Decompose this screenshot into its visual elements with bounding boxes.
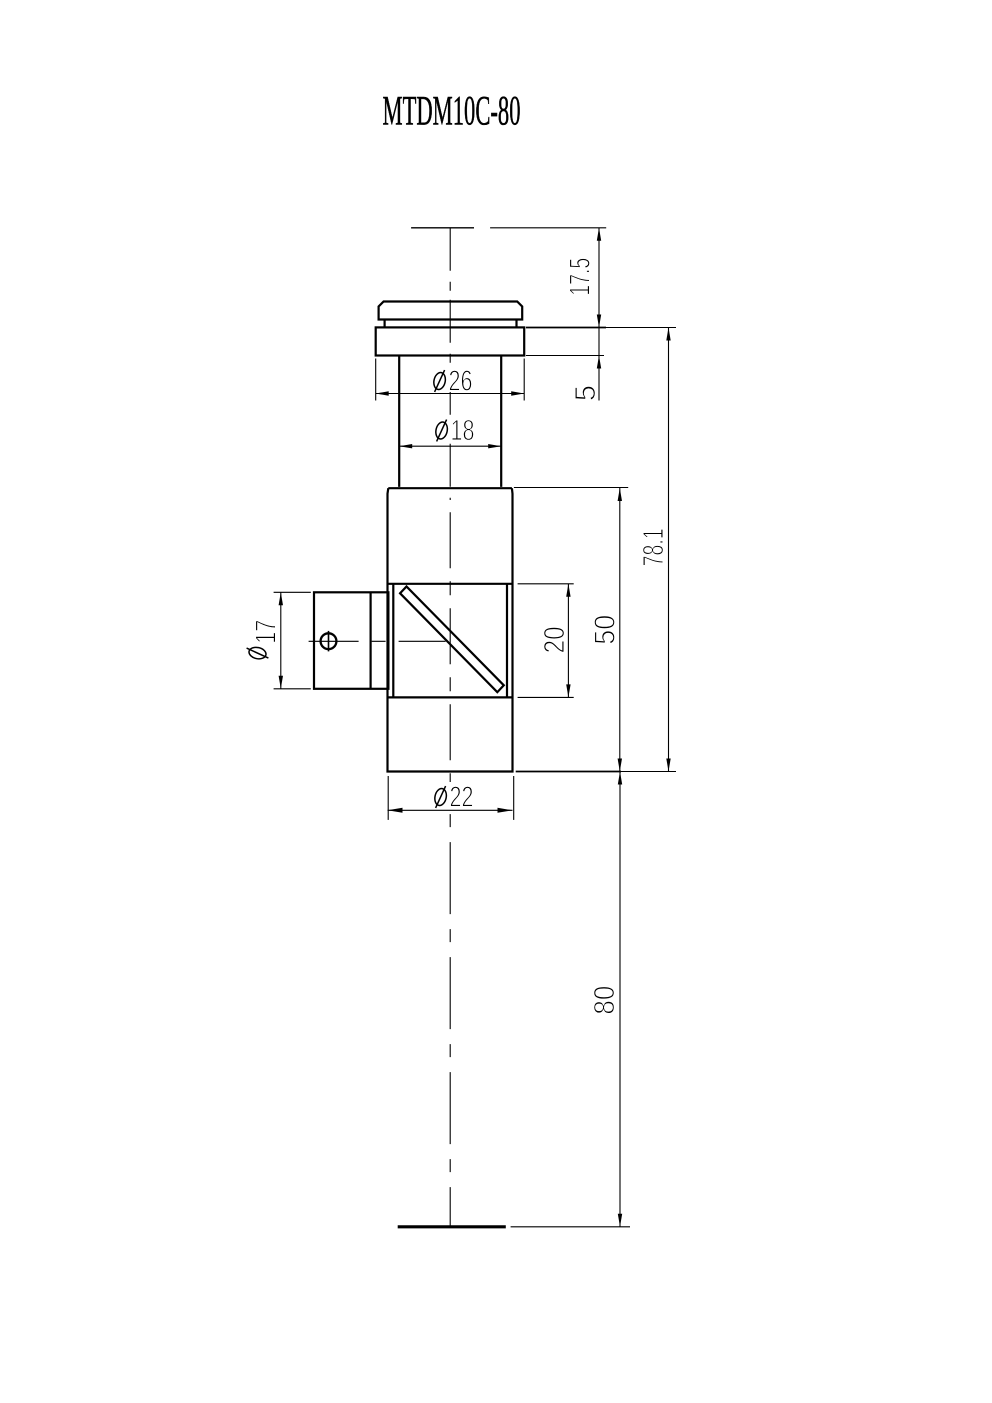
- svg-text:5: 5: [570, 385, 602, 401]
- svg-text:80: 80: [589, 986, 621, 1015]
- svg-text:18: 18: [451, 415, 475, 447]
- svg-text:MTDM10C-80: MTDM10C-80: [383, 89, 521, 135]
- svg-text:22: 22: [450, 782, 474, 814]
- svg-text:17: 17: [251, 620, 283, 644]
- svg-text:50: 50: [590, 615, 622, 645]
- svg-text:26: 26: [449, 366, 473, 398]
- svg-text:78.1: 78.1: [638, 528, 670, 566]
- svg-text:20: 20: [539, 626, 571, 653]
- svg-text:17.5: 17.5: [565, 258, 597, 296]
